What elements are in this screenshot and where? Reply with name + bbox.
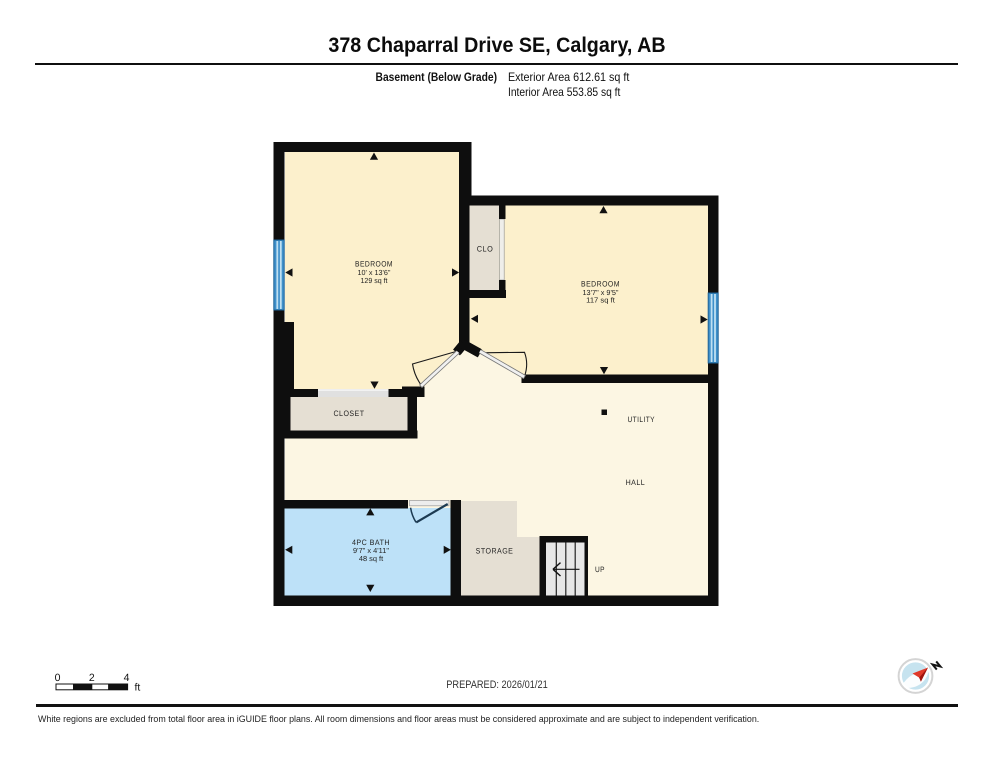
svg-text:129 sq ft: 129 sq ft <box>361 276 388 285</box>
svg-text:CLO: CLO <box>477 244 494 253</box>
svg-text:HALL: HALL <box>626 478 646 487</box>
svg-text:STORAGE: STORAGE <box>476 547 514 556</box>
svg-text:UTILITY: UTILITY <box>628 415 656 424</box>
svg-text:UP: UP <box>595 565 605 574</box>
svg-text:117 sq ft: 117 sq ft <box>586 295 615 304</box>
svg-text:0: 0 <box>55 672 61 684</box>
svg-text:CLOSET: CLOSET <box>334 409 365 418</box>
svg-text:48 sq ft: 48 sq ft <box>359 554 383 563</box>
